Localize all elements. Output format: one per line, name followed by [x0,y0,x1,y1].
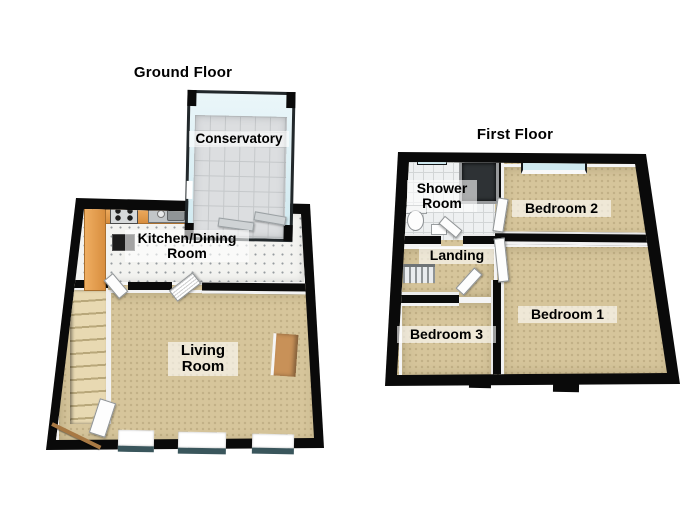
fireplace-unit [271,333,299,377]
room-label-living: Living Room [168,342,238,376]
first-floor-title: First Floor [445,126,585,143]
wall-shower-landing-a [403,234,441,247]
kitchen-counter-left [84,207,106,291]
wall-landing-bedroom3 [397,292,459,306]
window-living-1 [118,430,154,453]
window-marker-bedroom3 [469,380,491,388]
conservatory-post-tr [286,92,295,108]
room-label-bedroom1: Bedroom 1 [518,306,617,323]
window-living-3 [252,434,294,455]
sink-tap [157,210,165,218]
room-label-conservatory: Conservatory [189,131,289,147]
room-label-shower: Shower Room [407,180,477,212]
wall-kitchen-living-c [202,282,308,294]
conservatory-post-tl [187,90,196,106]
toilet-icon [407,210,424,231]
room-label-landing: Landing [419,247,495,264]
wall-bedroom2-bedroom1 [495,231,653,245]
conservatory-post-br [283,225,292,241]
wall-shower-landing-b [463,234,495,247]
ground-floor-title: Ground Floor [98,64,268,81]
window-living-2 [178,432,226,455]
conservatory-door-mark [186,181,192,199]
room-label-bedroom2: Bedroom 2 [512,200,611,217]
room-label-bedroom3: Bedroom 3 [397,326,496,343]
floorplan-image: Ground Floor [0,0,700,509]
wall-kitchen-living-b [128,282,172,293]
room-label-kitchen-dining: Kitchen/Dining Room [125,230,249,262]
stairs-landing [403,264,435,283]
window-marker-bedroom1 [553,384,579,392]
